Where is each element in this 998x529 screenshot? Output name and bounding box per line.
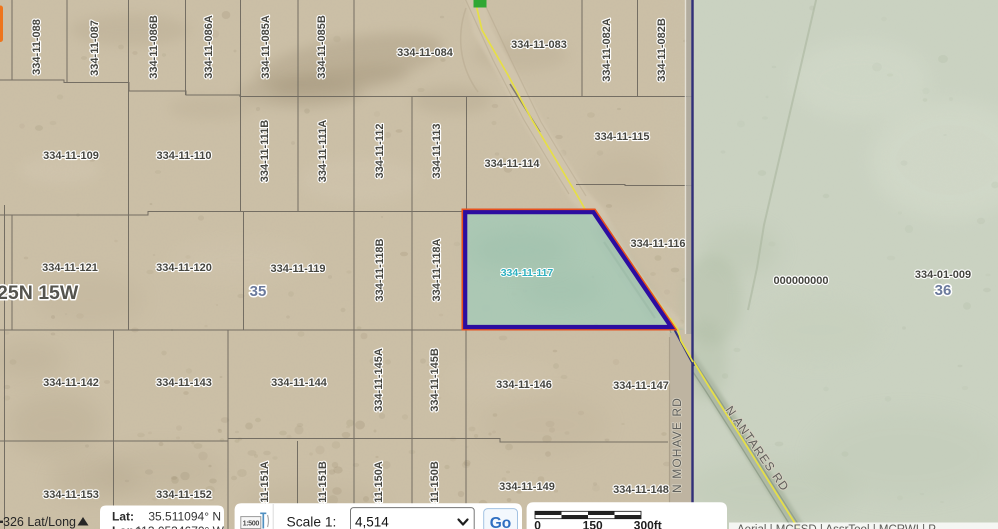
svg-text:334-11-116: 334-11-116 [630, 238, 685, 250]
svg-text:334-11-086B: 334-11-086B [148, 15, 160, 79]
svg-text:334-11-144: 334-11-144 [271, 377, 328, 389]
svg-text:4,514: 4,514 [355, 514, 389, 529]
svg-text:334-11-083: 334-11-083 [511, 39, 567, 51]
svg-text:334-11-114: 334-11-114 [484, 158, 540, 170]
svg-text:25N 15W: 25N 15W [0, 282, 79, 304]
svg-text:334-11-084: 334-11-084 [397, 47, 454, 59]
svg-text:1:500: 1:500 [243, 519, 260, 528]
svg-text:334-11-115: 334-11-115 [594, 131, 649, 143]
svg-text:334-11-111B: 334-11-111B [259, 120, 271, 182]
svg-text:334-11-088: 334-11-088 [31, 19, 43, 75]
svg-text:334-11-120: 334-11-120 [156, 262, 212, 274]
svg-text:000000000: 000000000 [773, 275, 828, 287]
svg-text:334-11-117: 334-11-117 [501, 267, 554, 279]
svg-text:Go: Go [490, 515, 512, 529]
svg-text:334-11-110: 334-11-110 [156, 150, 211, 162]
svg-text:334-11-149: 334-11-149 [499, 481, 555, 493]
svg-text:334-11-082A: 334-11-082A [601, 18, 613, 82]
svg-text:334-11-146: 334-11-146 [496, 379, 552, 391]
svg-text:334-11-147: 334-11-147 [613, 380, 669, 392]
svg-text:334-11-086A: 334-11-086A [203, 15, 215, 79]
svg-text:Scale 1:: Scale 1: [287, 514, 337, 529]
svg-text:334-11-085A: 334-11-085A [260, 15, 272, 79]
svg-text:334-11-148: 334-11-148 [613, 484, 669, 496]
svg-text:334-11-145A: 334-11-145A [373, 348, 385, 412]
svg-text:150: 150 [583, 519, 603, 529]
svg-text:334-11-113: 334-11-113 [431, 123, 443, 178]
svg-text:334-01-009: 334-01-009 [915, 269, 971, 281]
svg-text:334-11-112: 334-11-112 [374, 123, 386, 178]
svg-text:35: 35 [250, 283, 267, 300]
svg-text:36: 36 [935, 282, 952, 299]
svg-text:334-11-145B: 334-11-145B [429, 348, 441, 412]
svg-text:334-11-082B: 334-11-082B [656, 18, 668, 82]
svg-text:0: 0 [534, 519, 541, 529]
svg-text:35.511094° N: 35.511094° N [148, 509, 221, 523]
svg-text:334-11-085B: 334-11-085B [316, 15, 328, 79]
svg-text:334-11-153: 334-11-153 [43, 489, 99, 501]
svg-text:334-11-152: 334-11-152 [156, 489, 212, 501]
svg-text:334-11-143: 334-11-143 [156, 377, 212, 389]
svg-text:334-11-087: 334-11-087 [89, 20, 101, 76]
svg-text:334-11-118A: 334-11-118A [431, 238, 443, 301]
svg-text:Aerial | MCFSD | AssrTool | MC: Aerial | MCFSD | AssrTool | MCRWI | P [737, 524, 936, 529]
svg-text:113.0534670° W: 113.0534670° W [135, 524, 224, 529]
svg-text:Lat:: Lat: [112, 509, 134, 523]
svg-text:334-11-118B: 334-11-118B [374, 238, 386, 301]
svg-text:334-11-109: 334-11-109 [43, 150, 99, 162]
svg-text:334-11-119: 334-11-119 [270, 263, 325, 275]
svg-text:N MOHAVE RD: N MOHAVE RD [670, 397, 684, 493]
svg-text:326 Lat/Long: 326 Lat/Long [3, 515, 76, 529]
svg-text:334-11-111A: 334-11-111A [317, 120, 329, 182]
svg-text:300ft: 300ft [634, 519, 662, 529]
svg-text:334-11-121: 334-11-121 [42, 262, 98, 274]
svg-text:334-11-142: 334-11-142 [43, 377, 99, 389]
